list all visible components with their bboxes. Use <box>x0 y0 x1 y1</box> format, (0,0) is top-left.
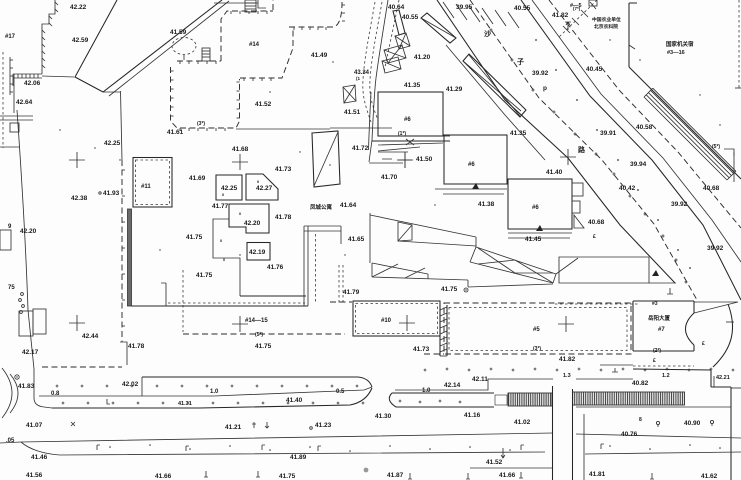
svg-text:II: II <box>220 239 222 243</box>
svg-text:41.77: 41.77 <box>212 203 229 210</box>
svg-text:#3—16: #3—16 <box>667 50 685 56</box>
svg-text:41.82: 41.82 <box>559 356 576 363</box>
svg-text:42.20: 42.20 <box>20 228 37 235</box>
svg-text:42.38: 42.38 <box>71 195 88 202</box>
svg-text:#11: #11 <box>141 184 151 190</box>
svg-text:p: p <box>543 85 547 92</box>
svg-text:39.95: 39.95 <box>456 4 473 11</box>
svg-text:40.68: 40.68 <box>588 219 605 226</box>
svg-text:40.58: 40.58 <box>636 124 653 131</box>
svg-text:(3*): (3*) <box>533 346 541 352</box>
svg-text:41.73: 41.73 <box>413 346 430 353</box>
svg-text:(5*): (5*) <box>255 332 263 338</box>
svg-text:41.79: 41.79 <box>343 289 360 296</box>
svg-text:41.29: 41.29 <box>446 86 463 93</box>
svg-text:41.78: 41.78 <box>128 343 145 350</box>
svg-text:41.69: 41.69 <box>189 175 206 182</box>
svg-text:40.90: 40.90 <box>684 420 701 427</box>
svg-text:北京农科院: 北京农科院 <box>594 23 618 30</box>
svg-text:41.87: 41.87 <box>387 472 404 479</box>
svg-text:国家机关宿: 国家机关宿 <box>666 40 694 48</box>
svg-text:41.76: 41.76 <box>267 264 284 271</box>
svg-text:41.50: 41.50 <box>416 156 433 163</box>
svg-text:75: 75 <box>8 285 15 291</box>
svg-text:41.56: 41.56 <box>26 472 43 479</box>
svg-text:41.89: 41.89 <box>290 454 307 461</box>
svg-text:#14: #14 <box>249 42 260 48</box>
svg-text:41.59: 41.59 <box>170 29 187 36</box>
svg-text:0.8: 0.8 <box>51 391 60 397</box>
svg-text:40.76: 40.76 <box>621 431 638 438</box>
svg-text:42.25: 42.25 <box>104 140 121 147</box>
svg-text:#14—15: #14—15 <box>245 318 268 324</box>
svg-text:#5: #5 <box>533 327 540 333</box>
svg-text:41.65: 41.65 <box>348 236 365 243</box>
svg-text:41.40: 41.40 <box>286 397 303 404</box>
svg-text:岳阳大厦: 岳阳大厦 <box>648 314 671 322</box>
svg-text:#7: #7 <box>658 327 665 333</box>
svg-text:(1*): (1*) <box>398 131 406 137</box>
svg-text:42.27: 42.27 <box>256 185 273 192</box>
svg-text:42.21: 42.21 <box>716 375 730 381</box>
svg-text:42.14: 42.14 <box>444 382 461 389</box>
svg-text:(1: (1 <box>356 76 360 81</box>
svg-text:.05: .05 <box>6 438 15 444</box>
svg-text:41.75: 41.75 <box>255 343 272 350</box>
svg-text:(7*): (7*) <box>573 6 581 11</box>
svg-text:39.92: 39.92 <box>532 70 549 77</box>
svg-text:II: II <box>257 180 259 184</box>
svg-text:8: 8 <box>639 417 642 423</box>
svg-text:(5*): (5*) <box>712 144 720 150</box>
svg-text:41.72: 41.72 <box>352 145 369 152</box>
svg-text:41.62: 41.62 <box>701 473 718 480</box>
svg-text:40.82: 40.82 <box>632 380 649 387</box>
svg-text:41.07: 41.07 <box>26 422 43 429</box>
svg-text:路: 路 <box>578 145 586 154</box>
svg-text:39.92: 39.92 <box>707 245 724 252</box>
svg-text:#6: #6 <box>404 117 411 123</box>
svg-text:子: 子 <box>517 58 524 66</box>
svg-text:#17: #17 <box>5 34 16 40</box>
svg-text:41.46: 41.46 <box>31 454 48 461</box>
svg-text:(3*): (3*) <box>197 121 205 127</box>
svg-text:41.93: 41.93 <box>103 190 120 197</box>
svg-text:42.22: 42.22 <box>70 4 87 11</box>
svg-text:42.19: 42.19 <box>249 249 266 256</box>
svg-text:41.40: 41.40 <box>546 169 563 176</box>
svg-text:42.11: 42.11 <box>472 376 488 383</box>
svg-text:1.0: 1.0 <box>210 389 219 395</box>
svg-text:II: II <box>223 258 225 262</box>
svg-text:41.75: 41.75 <box>279 473 296 480</box>
svg-text:41.52: 41.52 <box>255 101 272 108</box>
svg-text:41.75: 41.75 <box>441 286 458 293</box>
svg-text:41.81: 41.81 <box>589 471 606 478</box>
svg-text:41.68: 41.68 <box>232 146 249 153</box>
svg-text:41.75: 41.75 <box>196 272 213 279</box>
svg-text:40.55: 40.55 <box>402 14 419 21</box>
svg-text:42.64: 42.64 <box>16 99 33 106</box>
svg-text:41.21: 41.21 <box>225 424 242 431</box>
svg-text:42.44: 42.44 <box>82 333 99 340</box>
svg-text:41.16: 41.16 <box>464 412 481 419</box>
svg-text:(2*): (2*) <box>653 348 661 354</box>
svg-text:0.5: 0.5 <box>336 389 345 395</box>
svg-text:40.45: 40.45 <box>586 66 603 73</box>
svg-text:39.92: 39.92 <box>671 201 688 208</box>
svg-text:41.35: 41.35 <box>404 82 421 89</box>
svg-text:41.64: 41.64 <box>340 202 357 209</box>
svg-text:39.94: 39.94 <box>630 161 647 168</box>
svg-text:41.52: 41.52 <box>486 459 503 466</box>
svg-text:#10: #10 <box>381 318 392 324</box>
svg-text:41.51: 41.51 <box>344 109 361 116</box>
svg-text:39.91: 39.91 <box>600 130 617 137</box>
svg-text:42.06: 42.06 <box>24 80 41 87</box>
svg-text:#3: #3 <box>652 301 658 307</box>
svg-text:41.82: 41.82 <box>552 12 569 19</box>
svg-text:41.49: 41.49 <box>311 52 328 59</box>
svg-text:42.17: 42.17 <box>22 349 39 356</box>
svg-text:41.61: 41.61 <box>167 129 184 136</box>
svg-text:沙: 沙 <box>484 30 491 38</box>
svg-text:II: II <box>239 212 241 216</box>
svg-text:40.55: 40.55 <box>514 5 531 12</box>
svg-text:II: II <box>222 193 224 197</box>
svg-text:42.20: 42.20 <box>244 220 261 227</box>
svg-text:£: £ <box>702 341 705 347</box>
svg-text:41.23: 41.23 <box>315 422 332 429</box>
svg-text:41.45: 41.45 <box>525 236 542 243</box>
svg-text:#6: #6 <box>532 205 539 211</box>
svg-text:中国农业单位: 中国农业单位 <box>592 16 621 23</box>
svg-text:41.30: 41.30 <box>375 413 392 420</box>
svg-text:41.75: 41.75 <box>186 234 203 241</box>
svg-text:41.38: 41.38 <box>478 201 495 208</box>
svg-text:41.83: 41.83 <box>18 383 35 390</box>
svg-text:41.70: 41.70 <box>381 174 398 181</box>
svg-text:#6: #6 <box>468 162 475 168</box>
svg-text:41.73: 41.73 <box>275 166 292 173</box>
svg-text:1.2: 1.2 <box>662 373 670 379</box>
svg-text:1.3: 1.3 <box>563 373 571 379</box>
svg-text:41.02: 41.02 <box>514 419 531 426</box>
svg-text:40.68: 40.68 <box>703 185 720 192</box>
svg-text:40.42: 40.42 <box>619 185 636 192</box>
svg-text:£: £ <box>593 234 596 240</box>
svg-text:41.20: 41.20 <box>414 54 431 61</box>
svg-text:42.02: 42.02 <box>122 381 139 388</box>
svg-text:41.78: 41.78 <box>275 214 292 221</box>
svg-text:42.59: 42.59 <box>72 37 89 44</box>
svg-text:41.66: 41.66 <box>155 473 172 480</box>
svg-text:£: £ <box>653 358 656 364</box>
svg-text:41.66: 41.66 <box>499 472 516 479</box>
svg-text:41.31: 41.31 <box>178 401 192 407</box>
svg-text:42.25: 42.25 <box>221 185 238 192</box>
svg-text:凤城公寓: 凤城公寓 <box>310 203 333 211</box>
